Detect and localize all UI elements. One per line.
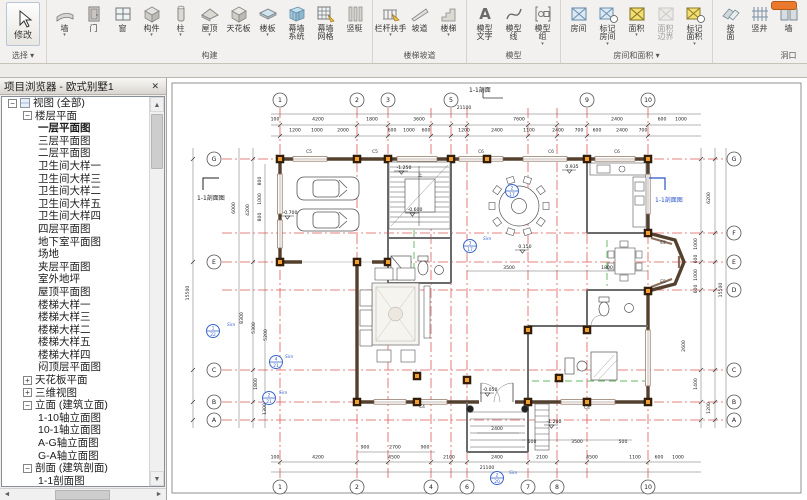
svg-text:8: 8 xyxy=(555,484,559,491)
svg-text:21100: 21100 xyxy=(457,105,472,111)
modify-cursor-icon xyxy=(13,8,33,28)
svg-text:-0.700: -0.700 xyxy=(283,210,298,216)
svg-text:100: 100 xyxy=(271,455,280,461)
svg-text:21: 21 xyxy=(273,363,279,369)
svg-text:600: 600 xyxy=(593,128,602,134)
wall-icon xyxy=(54,3,76,25)
svg-text:E: E xyxy=(732,259,736,266)
svg-text:0.150: 0.150 xyxy=(518,244,531,250)
ribbon-item-0-8[interactable]: 幕墙系统 xyxy=(282,2,311,42)
tree-item-22[interactable]: +天花板平面 xyxy=(2,374,149,387)
svg-text:C5: C5 xyxy=(372,149,378,155)
svg-text:1: 1 xyxy=(278,484,282,491)
svg-text:C: C xyxy=(732,367,736,374)
svg-text:1-1剖面图: 1-1剖面图 xyxy=(655,196,683,204)
svg-text:3500: 3500 xyxy=(503,265,515,271)
scroll-down-icon[interactable]: ▼ xyxy=(150,471,164,486)
svg-text:C6: C6 xyxy=(478,149,484,155)
tree-item-4[interactable]: 二层平面图 xyxy=(2,147,149,160)
detail-callout-0[interactable]: 122 xyxy=(207,325,220,339)
svg-text:-0.050: -0.050 xyxy=(483,387,498,393)
curtain-system-icon xyxy=(286,3,308,25)
ribbon-item-0-3[interactable]: 构件▾ xyxy=(137,2,166,37)
svg-text:4: 4 xyxy=(275,357,278,363)
collapse-icon[interactable]: − xyxy=(23,464,32,473)
ribbon-group-3: 房间标记房间▾面积▾面积边界标记面积▾房间和面积 ▾ xyxy=(561,0,713,63)
select-panel-label[interactable]: 选择 ▾ xyxy=(0,50,46,63)
modify-button[interactable]: 修改 xyxy=(6,2,40,46)
tree-item-1[interactable]: −楼层平面 xyxy=(2,110,149,123)
ribbon-item-1-2[interactable]: 楼梯▾ xyxy=(434,2,463,37)
svg-text:700: 700 xyxy=(639,128,648,134)
svg-text:1-1剖面: 1-1剖面 xyxy=(469,86,491,94)
svg-text:C: C xyxy=(212,367,216,374)
tree-item-6[interactable]: 卫生间大样三 xyxy=(2,173,149,186)
svg-text:-1.200: -1.200 xyxy=(547,419,562,425)
svg-text:G: G xyxy=(732,156,737,163)
tree-item-15[interactable]: 屋顶平面图 xyxy=(2,286,149,299)
svg-text:C6: C6 xyxy=(614,149,620,155)
svg-text:5: 5 xyxy=(449,97,453,104)
ribbon-item-2-1[interactable]: 模型线 xyxy=(499,2,528,42)
svg-text:2000: 2000 xyxy=(337,128,349,134)
svg-text:3: 3 xyxy=(469,241,472,247)
scrollbar-thumb[interactable] xyxy=(151,114,163,169)
tree-item-9[interactable]: 卫生间大样四 xyxy=(2,210,149,223)
mullion-icon xyxy=(344,3,366,25)
tree-item-10[interactable]: 四层平面图 xyxy=(2,223,149,236)
view-crop-frame xyxy=(172,83,801,493)
tree-item-18[interactable]: 楼梯大样二 xyxy=(2,324,149,337)
area-icon xyxy=(626,3,648,25)
svg-text:4200: 4200 xyxy=(312,455,324,461)
tree-item-7[interactable]: 卫生间大样二 xyxy=(2,185,149,198)
options-bar xyxy=(0,64,807,78)
scroll-up-icon[interactable]: ▲ xyxy=(150,97,164,112)
svg-text:600: 600 xyxy=(422,128,431,134)
tree-item-28[interactable]: G-A轴立面图 xyxy=(2,450,149,463)
tree-item-23[interactable]: +三维视图 xyxy=(2,387,149,400)
svg-text:7600: 7600 xyxy=(513,117,525,123)
drawing-area[interactable]: 112234567891010GGFEEDCCBBAA 211001004200… xyxy=(167,78,807,500)
svg-text:2700: 2700 xyxy=(389,445,401,451)
shaft-icon xyxy=(749,3,771,25)
svg-text:2: 2 xyxy=(268,393,271,399)
svg-text:5200: 5200 xyxy=(263,329,269,341)
svg-text:-1.250: -1.250 xyxy=(397,165,412,171)
tree-item-24[interactable]: −立面 (建筑立面) xyxy=(2,399,149,412)
svg-text:22: 22 xyxy=(210,332,216,338)
svg-text:10: 10 xyxy=(644,97,652,104)
svg-text:7: 7 xyxy=(526,484,530,491)
column-icon xyxy=(170,3,192,25)
ribbon-item-0-10[interactable]: 竖梃 xyxy=(340,2,369,33)
ribbon-panel-label-2: 模型 xyxy=(467,50,560,63)
svg-text:F: F xyxy=(732,230,736,237)
svg-text:10: 10 xyxy=(644,484,652,491)
tree-item-19[interactable]: 楼梯大样五 xyxy=(2,336,149,349)
svg-text:1000: 1000 xyxy=(693,238,699,250)
component-icon xyxy=(141,3,163,25)
car xyxy=(297,177,359,200)
svg-text:1000: 1000 xyxy=(403,128,415,134)
svg-text:6200: 6200 xyxy=(706,192,712,204)
ribbon-item-4-0[interactable]: 按面 xyxy=(716,2,745,42)
ribbon-group-2: A模型文字模型线模型组▾模型 xyxy=(467,0,561,63)
stair-icon xyxy=(438,3,460,25)
svg-text:9: 9 xyxy=(585,97,589,104)
detail-callout-3[interactable]: 421 xyxy=(270,356,283,370)
svg-text:4500: 4500 xyxy=(388,455,400,461)
svg-text:6000: 6000 xyxy=(231,202,237,214)
svg-text:上: 上 xyxy=(418,171,422,177)
svg-text:2: 2 xyxy=(511,186,514,192)
svg-text:1: 1 xyxy=(212,326,215,332)
svg-text:600: 600 xyxy=(693,285,699,294)
ribbon: 修改 选择 ▾ 墙▾门窗构件▾柱▾屋顶▾天花板楼板▾幕墙系统幕墙网格竖梃构建栏杆… xyxy=(0,0,807,64)
svg-text:4200: 4200 xyxy=(245,204,251,216)
tree-item-20[interactable]: 楼梯大样四 xyxy=(2,349,149,362)
project-browser-title: 项目浏览器 - 欧式别墅1 xyxy=(4,79,148,94)
round-dining-table xyxy=(499,186,539,226)
svg-text:Sim: Sim xyxy=(285,354,293,360)
floor-icon xyxy=(257,3,279,25)
detail-callout-5[interactable]: 220 xyxy=(491,472,504,486)
close-icon[interactable]: ✕ xyxy=(148,81,162,92)
svg-text:15500: 15500 xyxy=(185,286,191,301)
svg-text:1400: 1400 xyxy=(693,378,699,390)
svg-text:600: 600 xyxy=(388,128,397,134)
svg-text:17: 17 xyxy=(467,247,473,253)
railing-icon xyxy=(380,3,402,25)
ribbon-item-2-0[interactable]: A模型文字 xyxy=(470,2,499,42)
svg-text:Sim: Sim xyxy=(227,322,235,328)
detail-callout-4[interactable]: 221 xyxy=(263,392,276,406)
svg-text:2400: 2400 xyxy=(491,426,503,432)
ribbon-item-0-6[interactable]: 天花板 xyxy=(224,2,253,33)
svg-text:1200: 1200 xyxy=(706,402,712,414)
ribbon-item-0-2[interactable]: 窗 xyxy=(108,2,137,33)
svg-text:17: 17 xyxy=(509,192,515,198)
ribbon-panel-label-0: 构建 xyxy=(47,50,372,63)
svg-text:1-1剖面图: 1-1剖面图 xyxy=(197,194,225,202)
svg-text:1000: 1000 xyxy=(675,117,687,123)
notification-badge xyxy=(771,1,797,10)
svg-text:600: 600 xyxy=(655,455,664,461)
tree-item-2[interactable]: 一层平面图 xyxy=(2,122,149,135)
svg-text:1800: 1800 xyxy=(601,265,613,271)
svg-text:1000: 1000 xyxy=(257,193,263,205)
svg-text:4500: 4500 xyxy=(586,455,598,461)
ribbon-item-3-4[interactable]: 标记面积▾ xyxy=(680,2,709,46)
tree-item-14[interactable]: 室外地坪 xyxy=(2,273,149,286)
ribbon-item-3-3: 面积边界 xyxy=(651,2,680,42)
ribbon-groups: 墙▾门窗构件▾柱▾屋顶▾天花板楼板▾幕墙系统幕墙网格竖梃构建栏杆扶手▾坡道楼梯▾… xyxy=(47,0,807,63)
ribbon-item-0-7[interactable]: 楼板▾ xyxy=(253,2,282,37)
svg-text:20: 20 xyxy=(494,479,500,485)
svg-text:1800: 1800 xyxy=(253,378,259,390)
tree-item-17[interactable]: 楼梯大样三 xyxy=(2,311,149,324)
detail-callout-2[interactable]: 317 xyxy=(464,240,477,254)
hscrollbar-thumb[interactable] xyxy=(55,490,110,500)
svg-text:900: 900 xyxy=(421,445,430,451)
opening-by-face-icon xyxy=(720,3,742,25)
tree-item-11[interactable]: 地下室平面图 xyxy=(2,236,149,249)
side-steps xyxy=(535,404,549,450)
tree-item-27[interactable]: A-G轴立面图 xyxy=(2,437,149,450)
ribbon-item-0-5[interactable]: 屋顶▾ xyxy=(195,2,224,37)
model-text-icon: A xyxy=(474,3,496,25)
svg-text:2400: 2400 xyxy=(491,128,503,134)
roof-icon xyxy=(199,3,221,25)
tree-item-8[interactable]: 卫生间大样五 xyxy=(2,198,149,211)
svg-text:2400: 2400 xyxy=(552,128,564,134)
svg-text:100: 100 xyxy=(271,117,280,123)
car xyxy=(297,209,359,231)
svg-text:C5: C5 xyxy=(306,149,312,155)
tree-item-29[interactable]: −剖面 (建筑剖面) xyxy=(2,462,149,475)
ribbon-group-select: 修改 选择 ▾ xyxy=(0,0,47,63)
svg-text:1100: 1100 xyxy=(523,128,535,134)
tree-item-30[interactable]: 1-1剖面图 xyxy=(2,475,149,486)
tree-item-5[interactable]: 卫生间大样一 xyxy=(2,160,149,173)
svg-text:1000: 1000 xyxy=(693,269,699,281)
ribbon-item-0-1[interactable]: 门 xyxy=(79,2,108,33)
svg-text:2400: 2400 xyxy=(616,128,628,134)
svg-text:2: 2 xyxy=(496,473,499,479)
ribbon-group-0: 墙▾门窗构件▾柱▾屋顶▾天花板楼板▾幕墙系统幕墙网格竖梃构建 xyxy=(47,0,373,63)
svg-text:4: 4 xyxy=(429,484,433,491)
svg-text:2: 2 xyxy=(355,484,359,491)
tree-vertical-scrollbar[interactable]: ▲ ▼ xyxy=(149,97,164,486)
area-tag-icon xyxy=(684,3,706,25)
tree-item-25[interactable]: 1-10轴立面图 xyxy=(2,412,149,425)
svg-text:1200: 1200 xyxy=(458,128,470,134)
svg-text:C4: C4 xyxy=(419,404,425,410)
ribbon-panel-label-4: 洞口 xyxy=(713,50,807,63)
svg-text:8300: 8300 xyxy=(239,312,245,324)
svg-text:600: 600 xyxy=(693,255,699,264)
views-icon xyxy=(20,98,30,108)
model-group-icon xyxy=(532,3,554,25)
svg-text:C6: C6 xyxy=(548,149,554,155)
svg-text:1200: 1200 xyxy=(289,128,301,134)
svg-text:1800: 1800 xyxy=(366,117,378,123)
svg-text:3600: 3600 xyxy=(413,117,425,123)
svg-text:700: 700 xyxy=(575,128,584,134)
svg-text:900: 900 xyxy=(361,445,370,451)
svg-text:-0.600: -0.600 xyxy=(408,207,423,213)
scroll-left-icon[interactable]: ◄ xyxy=(0,491,14,498)
svg-text:E: E xyxy=(212,259,216,266)
tree-item-0[interactable]: −视图 (全部) xyxy=(2,97,149,110)
ribbon-item-0-0[interactable]: 墙▾ xyxy=(50,2,79,37)
room-tag-icon xyxy=(597,3,619,25)
ribbon-item-0-9[interactable]: 幕墙网格 xyxy=(311,2,340,42)
area-boundary-icon xyxy=(655,3,677,25)
svg-text:Sim: Sim xyxy=(509,470,517,476)
ceiling-icon xyxy=(228,3,250,25)
svg-text:Sim: Sim xyxy=(279,390,287,396)
tree-item-16[interactable]: 楼梯大样一 xyxy=(2,299,149,312)
scroll-right-icon[interactable]: ► xyxy=(152,491,166,498)
tree-item-12[interactable]: 场地 xyxy=(2,248,149,261)
svg-text:500: 500 xyxy=(619,439,628,445)
svg-text:G: G xyxy=(212,156,217,163)
svg-text:D: D xyxy=(732,287,737,294)
svg-text:1000: 1000 xyxy=(311,128,323,134)
svg-text:Sim: Sim xyxy=(483,236,491,242)
living-room-rug xyxy=(372,283,419,345)
svg-text:6: 6 xyxy=(465,484,469,491)
svg-text:3500: 3500 xyxy=(571,439,583,445)
ribbon-item-0-4[interactable]: 柱▾ xyxy=(166,2,195,37)
ribbon-item-2-2[interactable]: 模型组▾ xyxy=(528,2,557,46)
expand-icon[interactable]: + xyxy=(23,376,32,385)
collapse-icon[interactable]: − xyxy=(8,99,17,108)
detail-callout-1[interactable]: 217 xyxy=(506,185,519,199)
svg-text:2100: 2100 xyxy=(536,455,548,461)
svg-text:E5: E5 xyxy=(660,279,666,285)
svg-text:B: B xyxy=(732,399,736,406)
project-browser-tree-wrap: −视图 (全部)−楼层平面一层平面图三层平面图二层平面图卫生间大样一卫生间大样三… xyxy=(1,96,165,487)
svg-text:21: 21 xyxy=(266,399,272,405)
project-browser-panel: 项目浏览器 - 欧式别墅1 ✕ −视图 (全部)−楼层平面一层平面图三层平面图二… xyxy=(0,78,167,500)
model-line-icon xyxy=(503,3,525,25)
svg-text:15500: 15500 xyxy=(718,283,724,298)
svg-text:1: 1 xyxy=(278,97,282,104)
project-browser-tree: −视图 (全部)−楼层平面一层平面图三层平面图二层平面图卫生间大样一卫生间大样三… xyxy=(2,97,149,486)
window-icon xyxy=(112,3,134,25)
ribbon-panel-label-1: 楼梯坡道 xyxy=(373,50,466,63)
svg-text:21100: 21100 xyxy=(480,465,495,471)
svg-text:4200: 4200 xyxy=(312,117,324,123)
svg-text:3: 3 xyxy=(386,97,390,104)
svg-text:2: 2 xyxy=(355,97,359,104)
svg-text:A: A xyxy=(479,5,491,23)
ribbon-item-3-2[interactable]: 面积▾ xyxy=(622,2,651,37)
svg-text:800: 800 xyxy=(257,213,263,222)
svg-text:1100: 1100 xyxy=(629,455,641,461)
ribbon-item-1-1[interactable]: 坡道 xyxy=(405,2,434,33)
ribbon-group-1: 栏杆扶手▾坡道楼梯▾楼梯坡道 xyxy=(373,0,467,63)
svg-text:1000: 1000 xyxy=(672,455,684,461)
ribbon-item-4-1[interactable]: 竖井 xyxy=(745,2,774,33)
svg-text:5300: 5300 xyxy=(251,322,257,334)
svg-text:800: 800 xyxy=(257,177,263,186)
ribbon-item-3-0[interactable]: 房间 xyxy=(564,2,593,33)
room-icon xyxy=(568,3,590,25)
modify-label: 修改 xyxy=(14,28,32,41)
tree-item-13[interactable]: 夹层平面图 xyxy=(2,261,149,274)
project-browser-titlebar[interactable]: 项目浏览器 - 欧式别墅1 ✕ xyxy=(0,78,166,95)
svg-text:2600: 2600 xyxy=(681,340,687,352)
svg-text:600: 600 xyxy=(658,117,667,123)
ribbon-item-1-0[interactable]: 栏杆扶手▾ xyxy=(376,2,405,37)
ribbon-item-4-3[interactable]: 垂直 xyxy=(803,2,807,33)
svg-text:2400: 2400 xyxy=(611,117,623,123)
collapse-icon[interactable]: − xyxy=(23,111,32,120)
ramp-icon xyxy=(409,3,431,25)
tree-horizontal-scrollbar[interactable]: ◄ ► xyxy=(0,488,166,500)
svg-text:2400: 2400 xyxy=(491,455,503,461)
tree-item-21[interactable]: 闷顶层平面图 xyxy=(2,361,149,374)
curtain-grid-icon xyxy=(315,3,337,25)
door-icon xyxy=(83,3,105,25)
tree-item-3[interactable]: 三层平面图 xyxy=(2,135,149,148)
svg-text:0.935: 0.935 xyxy=(565,164,578,170)
svg-text:E5: E5 xyxy=(660,240,666,246)
tree-item-26[interactable]: 10-1轴立面图 xyxy=(2,424,149,437)
svg-text:C4: C4 xyxy=(584,405,590,411)
svg-text:B: B xyxy=(212,399,216,406)
svg-text:2100: 2100 xyxy=(443,455,455,461)
ribbon-item-3-1[interactable]: 标记房间▾ xyxy=(593,2,622,46)
expand-icon[interactable]: + xyxy=(23,388,32,397)
collapse-icon[interactable]: − xyxy=(23,401,32,410)
revit-window: { "ribbon": { "modify": { "label": "修改",… xyxy=(0,0,807,500)
ribbon-panel-label-3[interactable]: 房间和面积 ▾ xyxy=(561,50,712,63)
svg-text:500: 500 xyxy=(528,439,537,445)
floor-plan-view[interactable]: 112234567891010GGFEEDCCBBAA 211001004200… xyxy=(167,78,807,500)
